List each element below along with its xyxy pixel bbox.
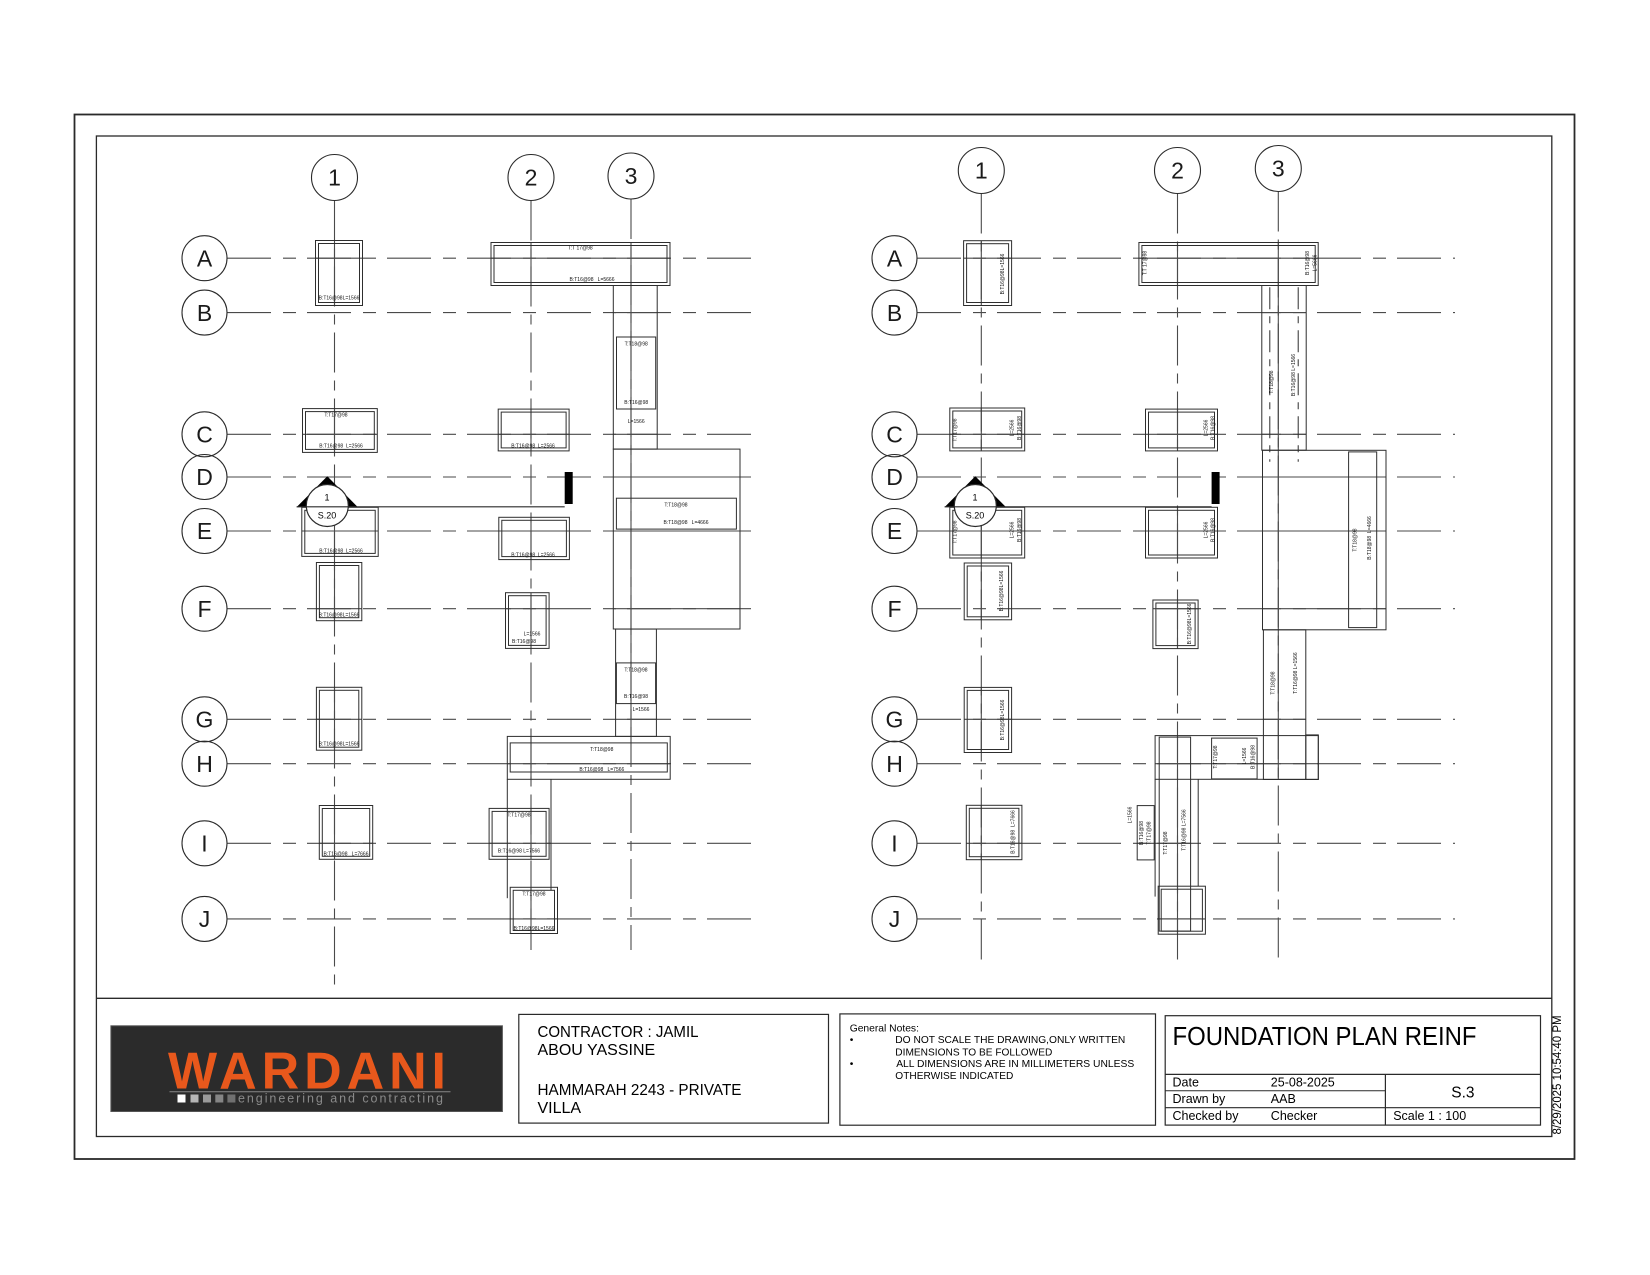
svg-text:T:T17@98: T:T17@98: [1147, 821, 1153, 844]
svg-text:General Notes:: General Notes:: [850, 1024, 919, 1035]
svg-text:L=1566: L=1566: [524, 632, 541, 638]
svg-text:B: B: [197, 300, 212, 326]
svg-text:F: F: [197, 596, 211, 622]
svg-text:J: J: [889, 906, 901, 932]
svg-text:E: E: [887, 518, 902, 544]
svg-text:B:T16@98 L=2566: B:T16@98 L=2566: [319, 549, 363, 555]
svg-text:L=1566: L=1566: [1128, 806, 1134, 823]
svg-text:B:T16@98L=1566: B:T16@98L=1566: [319, 613, 360, 619]
svg-text:HAMMARAH 2243 - PRIVATE: HAMMARAH 2243 - PRIVATE: [538, 1082, 742, 1099]
svg-text:T:T17@98: T:T17@98: [1213, 745, 1219, 768]
svg-text:2: 2: [525, 165, 538, 191]
svg-text:T:T17@98: T:T17@98: [953, 418, 959, 441]
svg-text:S.3: S.3: [1451, 1085, 1474, 1102]
svg-text:B:T16@98L=1566: B:T16@98L=1566: [514, 926, 555, 932]
svg-text:C: C: [196, 422, 213, 448]
svg-text:B:T16@98: B:T16@98: [1305, 251, 1311, 275]
svg-text:B:T16@98L=1566: B:T16@98L=1566: [1000, 253, 1006, 294]
svg-text:A: A: [887, 245, 903, 271]
svg-text:•: •: [850, 1059, 854, 1070]
svg-text:B:T18@98 L=4666: B:T18@98 L=4666: [1367, 516, 1373, 560]
svg-text:L=5666: L=5666: [1313, 254, 1319, 271]
svg-text:T:T 17@98: T:T 17@98: [1143, 251, 1149, 276]
svg-text:T:T17@98: T:T17@98: [522, 892, 545, 898]
svg-text:D: D: [886, 464, 903, 490]
svg-text:L=2566: L=2566: [1010, 521, 1016, 538]
svg-text:2: 2: [1171, 158, 1184, 184]
svg-text:T:T18@98: T:T18@98: [625, 342, 648, 348]
svg-text:L=1566: L=1566: [633, 707, 650, 713]
svg-text:G: G: [886, 707, 904, 733]
svg-text:L=1566: L=1566: [1242, 747, 1248, 764]
svg-text:B:T16@98: B:T16@98: [624, 400, 648, 406]
svg-text:B:T16@98 L=7566: B:T16@98 L=7566: [579, 767, 624, 773]
svg-text:B:T16@98: B:T16@98: [512, 639, 536, 645]
svg-text:B:T16@98: B:T16@98: [1017, 416, 1023, 440]
svg-text:8/29/2025 10:54:40 PM: 8/29/2025 10:54:40 PM: [1550, 1015, 1564, 1134]
svg-text:ABOU YASSINE: ABOU YASSINE: [538, 1042, 656, 1059]
svg-text:F: F: [887, 596, 901, 622]
svg-text:T:T18@98: T:T18@98: [1269, 370, 1275, 393]
svg-text:H: H: [886, 751, 903, 777]
svg-text:Checked by: Checked by: [1173, 1109, 1240, 1123]
svg-text:B:T16@98 L=7666: B:T16@98 L=7666: [324, 852, 369, 858]
svg-text:1: 1: [975, 158, 988, 184]
svg-text:E: E: [197, 518, 212, 544]
svg-text:B:T16@98 L=7666: B:T16@98 L=7666: [1011, 810, 1017, 854]
svg-text:B:T16@98: B:T16@98: [1211, 518, 1217, 542]
svg-text:B:T16@98L=1566: B:T16@98L=1566: [1187, 603, 1193, 644]
svg-text:FOUNDATION PLAN REINF: FOUNDATION PLAN REINF: [1173, 1023, 1477, 1051]
svg-text:I: I: [891, 831, 897, 857]
svg-text:OTHERWISE INDICATED: OTHERWISE INDICATED: [895, 1071, 1013, 1082]
svg-text:DO NOT SCALE THE DRAWING,ONLY: DO NOT SCALE THE DRAWING,ONLY WRITTEN: [895, 1035, 1125, 1046]
svg-text:T:T18@98: T:T18@98: [590, 747, 613, 753]
svg-text:T:T18@98: T:T18@98: [664, 503, 687, 509]
svg-text:Scale 1 : 100: Scale 1 : 100: [1393, 1109, 1466, 1123]
svg-text:L=2566: L=2566: [1010, 419, 1016, 436]
svg-text:Drawn by: Drawn by: [1173, 1092, 1227, 1106]
svg-text:B:T16@98: B:T16@98: [1017, 518, 1023, 542]
svg-text:B:T16@98 L=2566: B:T16@98 L=2566: [319, 444, 363, 450]
svg-text:ALL DIMENSIONS ARE IN MILLIMET: ALL DIMENSIONS ARE IN MILLIMETERS UNLESS: [896, 1059, 1134, 1070]
svg-text:1: 1: [328, 165, 341, 191]
svg-text:B: B: [887, 300, 902, 326]
svg-text:3: 3: [625, 163, 638, 189]
svg-text:B:T16@98: B:T16@98: [1211, 416, 1217, 440]
svg-text:B:T16@98 L=5666: B:T16@98 L=5666: [570, 277, 615, 283]
svg-text:T:T 17@98: T:T 17@98: [568, 246, 593, 252]
svg-text:S.20: S.20: [318, 511, 337, 521]
svg-text:DIMENSIONS TO BE FOLLOWED: DIMENSIONS TO BE FOLLOWED: [895, 1047, 1052, 1058]
svg-text:B:T16@98L=1566: B:T16@98L=1566: [999, 570, 1005, 611]
svg-text:AAB: AAB: [1271, 1092, 1296, 1106]
svg-text:B:T16@98L=1566: B:T16@98L=1566: [319, 742, 360, 748]
svg-text:25-08-2025: 25-08-2025: [1271, 1076, 1335, 1090]
svg-text:B:T16@98: B:T16@98: [1251, 745, 1257, 769]
svg-text:VILLA: VILLA: [538, 1100, 582, 1117]
svg-text:C: C: [886, 422, 903, 448]
svg-text:L=2566: L=2566: [1204, 521, 1210, 538]
svg-text:G: G: [196, 707, 214, 733]
svg-text:Checker: Checker: [1271, 1109, 1318, 1123]
svg-text:B:T18@98 L=4666: B:T18@98 L=4666: [664, 520, 709, 526]
svg-text:B:T16@98 L=1566: B:T16@98 L=1566: [1291, 354, 1297, 396]
svg-text:B:T16@98L=1566: B:T16@98L=1566: [319, 296, 360, 302]
svg-text:T:T17@98: T:T17@98: [953, 520, 959, 543]
svg-text:B:T16@98 L=7566: B:T16@98 L=7566: [498, 849, 540, 855]
svg-text:T:T17@98: T:T17@98: [324, 413, 347, 419]
svg-text:1: 1: [972, 493, 977, 503]
svg-text:engineering and contracting: engineering and contracting: [238, 1092, 443, 1106]
svg-text:T:T18@98: T:T18@98: [1353, 528, 1359, 551]
svg-text:B:T16@98: B:T16@98: [1139, 821, 1145, 845]
svg-text:H: H: [196, 751, 213, 777]
svg-text:T:T17@98: T:T17@98: [1163, 831, 1169, 854]
svg-text:T:T17@98: T:T17@98: [507, 813, 530, 819]
svg-text:T:T16@98 L=1566: T:T16@98 L=1566: [1293, 652, 1299, 694]
svg-text:B:T16@98L=1566: B:T16@98L=1566: [1000, 699, 1006, 740]
svg-text:B:T16@98 L=2566: B:T16@98 L=2566: [511, 553, 555, 559]
svg-text:L=1566: L=1566: [628, 419, 645, 425]
svg-text:S.20: S.20: [966, 511, 985, 521]
svg-text:J: J: [199, 906, 211, 932]
svg-text:T:T16@98 L=7566: T:T16@98 L=7566: [1182, 809, 1188, 851]
svg-text:1: 1: [324, 493, 329, 503]
svg-text:3: 3: [1272, 156, 1285, 182]
svg-text:I: I: [201, 831, 207, 857]
svg-text:D: D: [196, 464, 213, 490]
svg-text:B:T16@98: B:T16@98: [624, 694, 648, 700]
svg-text:T:T18@98: T:T18@98: [1271, 671, 1277, 694]
svg-text:T:T18@98: T:T18@98: [624, 668, 647, 674]
svg-text:B:T16@98 L=2566: B:T16@98 L=2566: [511, 444, 555, 450]
svg-text:L=2566: L=2566: [1204, 419, 1210, 436]
svg-text:Date: Date: [1173, 1076, 1199, 1090]
svg-text:A: A: [197, 245, 213, 271]
svg-text:•: •: [850, 1035, 854, 1046]
svg-text:CONTRACTOR : JAMIL: CONTRACTOR : JAMIL: [538, 1024, 699, 1041]
